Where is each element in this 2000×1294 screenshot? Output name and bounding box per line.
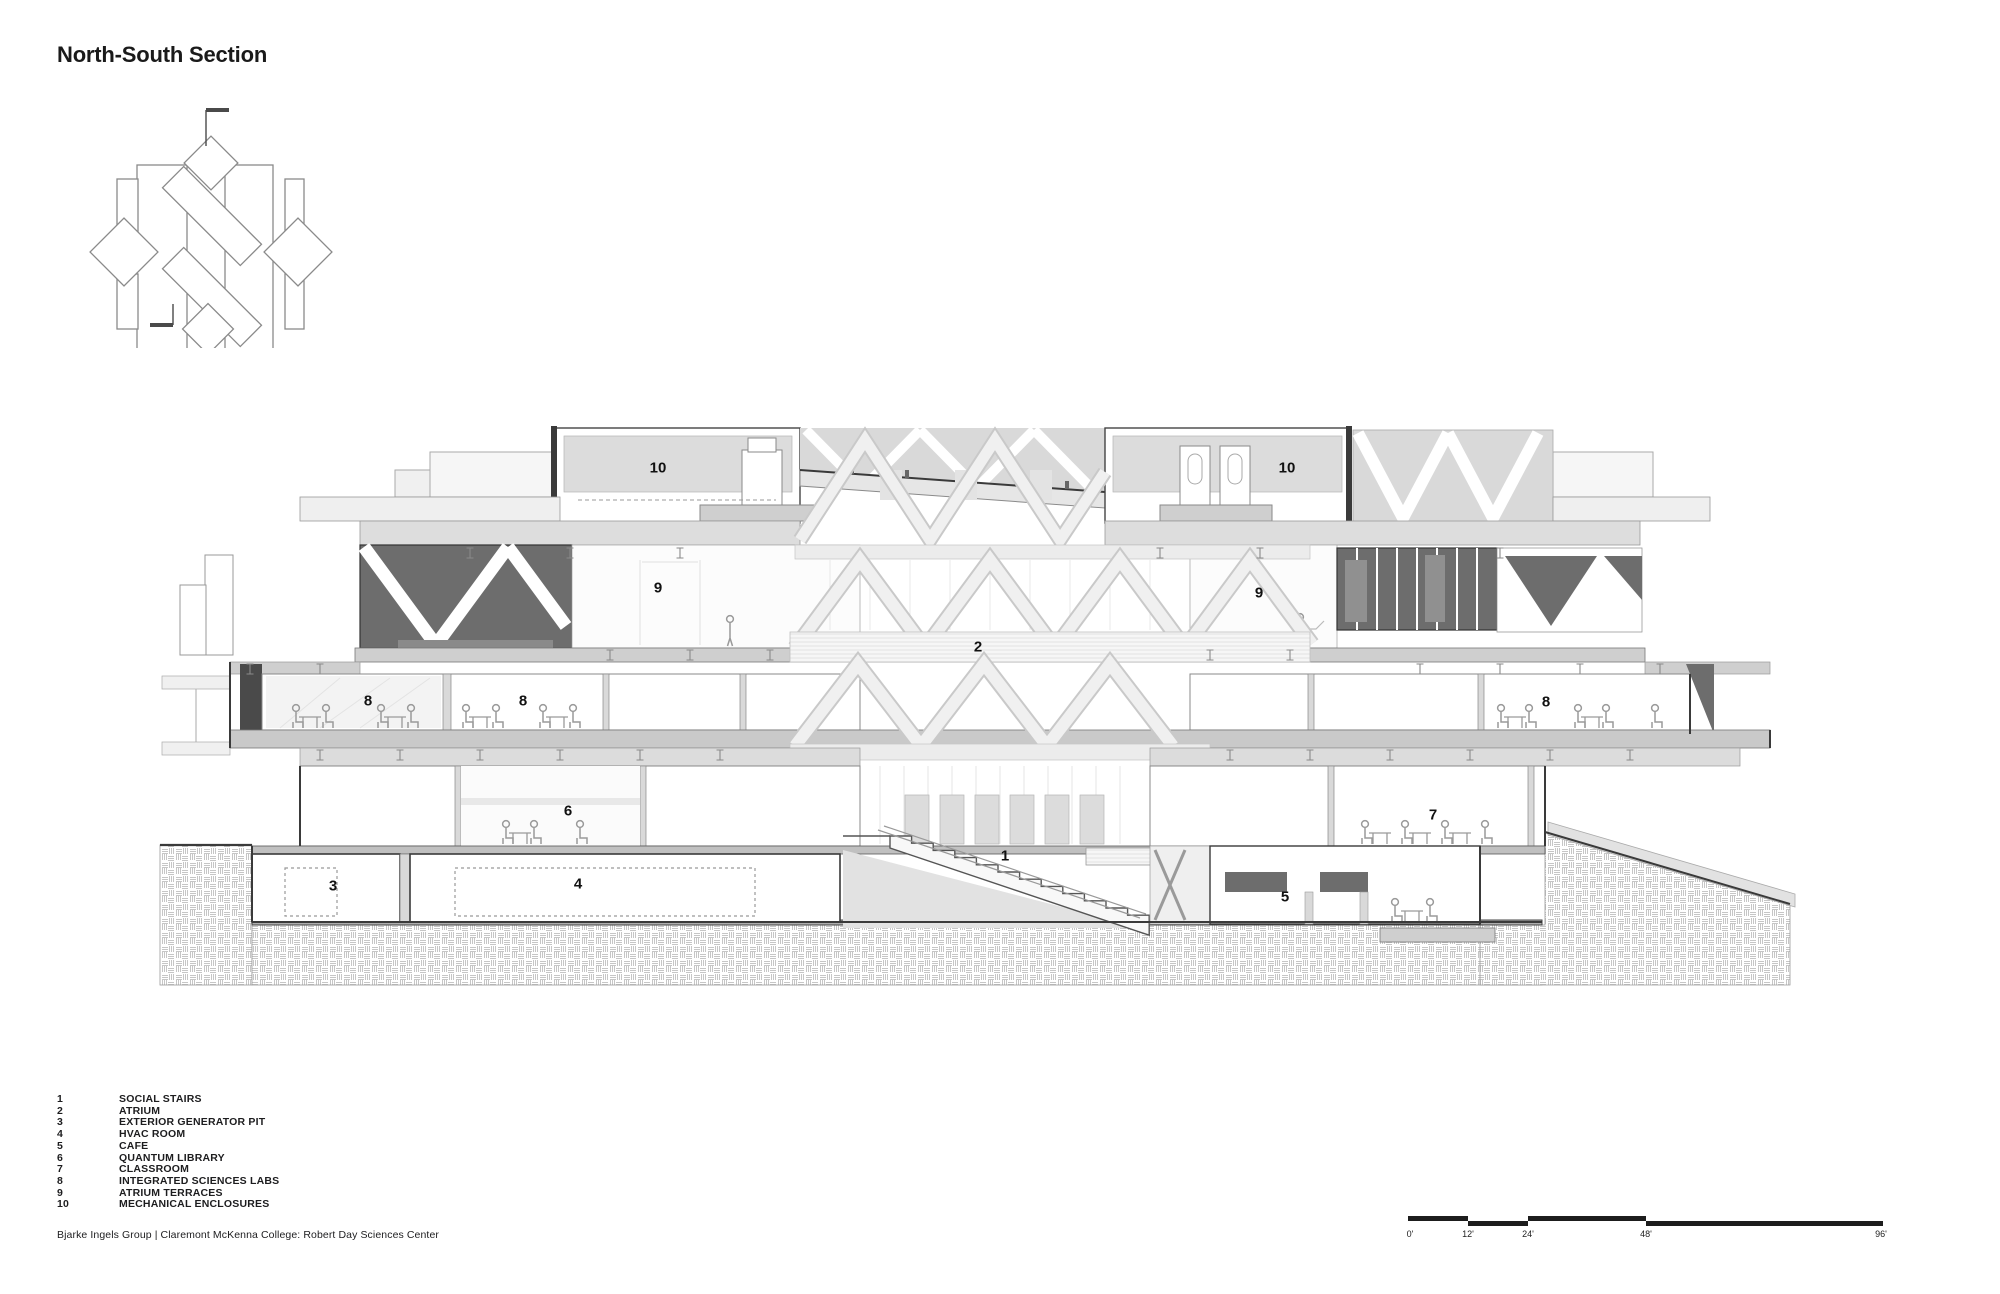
legend-row: 1SOCIAL STAIRS — [57, 1094, 279, 1106]
legend-number: 3 — [57, 1117, 119, 1129]
drawing-label-3: 3 — [329, 879, 337, 894]
drawing-label-7: 7 — [1429, 808, 1437, 823]
legend-number: 1 — [57, 1094, 119, 1106]
drawing-label-10-right: 10 — [1279, 461, 1296, 476]
scale-bar-segment — [1528, 1216, 1646, 1221]
scale-bar-segment — [1468, 1221, 1528, 1226]
legend-row: 10MECHANICAL ENCLOSURES — [57, 1199, 279, 1211]
drawing-label-4: 4 — [574, 877, 582, 892]
scale-label: 24' — [1522, 1229, 1534, 1239]
drawing-label-8-b: 8 — [519, 694, 527, 709]
scale-label: 12' — [1462, 1229, 1474, 1239]
ground-level — [300, 748, 1740, 846]
scale-label: 48' — [1640, 1229, 1652, 1239]
scale-label: 96' — [1875, 1229, 1887, 1239]
legend-number: 6 — [57, 1153, 119, 1165]
legend-label: CAFE — [119, 1141, 148, 1153]
scale-bar-segment — [1408, 1216, 1468, 1221]
legend-number: 4 — [57, 1129, 119, 1141]
legend-number: 8 — [57, 1176, 119, 1188]
drawing-label-9-left: 9 — [654, 581, 662, 596]
legend-row: 4HVAC ROOM — [57, 1129, 279, 1141]
credit-line: Bjarke Ingels Group | Claremont McKenna … — [57, 1229, 439, 1241]
drawing-sheet: North-South Section — [0, 0, 2000, 1294]
scale-label: 0' — [1407, 1229, 1414, 1239]
legend-number: 7 — [57, 1164, 119, 1176]
legend-label: MECHANICAL ENCLOSURES — [119, 1199, 269, 1211]
scale-bar-segment — [1646, 1221, 1883, 1226]
drawing-label-5: 5 — [1281, 890, 1289, 905]
legend-label: INTEGRATED SCIENCES LABS — [119, 1176, 279, 1188]
legend-row: 8INTEGRATED SCIENCES LABS — [57, 1176, 279, 1188]
drawing-label-10-left: 10 — [650, 461, 667, 476]
drawing-label-6: 6 — [564, 804, 572, 819]
drawing-label-2: 2 — [974, 640, 982, 655]
legend: 1SOCIAL STAIRS 2ATRIUM 3EXTERIOR GENERAT… — [57, 1094, 279, 1211]
legend-number: 10 — [57, 1199, 119, 1211]
drawing-label-1: 1 — [1001, 849, 1009, 864]
section-drawing — [0, 0, 2000, 1294]
drawing-label-9-right: 9 — [1255, 586, 1263, 601]
legend-label: SOCIAL STAIRS — [119, 1094, 202, 1106]
legend-row: 5CAFE — [57, 1141, 279, 1153]
scale-bar: 0' 12' 24' 48' 96' — [1408, 1216, 1884, 1246]
drawing-label-8-c: 8 — [1542, 695, 1550, 710]
legend-number: 5 — [57, 1141, 119, 1153]
legend-number: 2 — [57, 1106, 119, 1118]
drawing-label-8-a: 8 — [364, 694, 372, 709]
